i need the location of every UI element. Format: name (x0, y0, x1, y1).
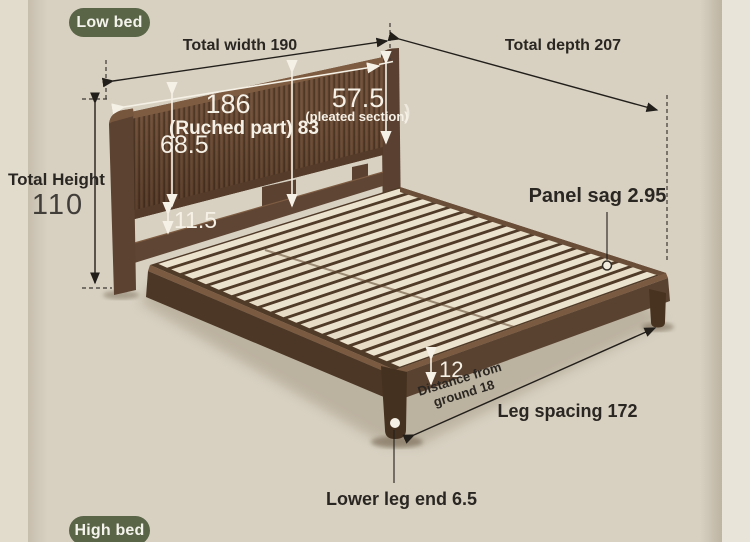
total-depth-label: Total depth 207 (483, 37, 643, 55)
rail-gap-value: 11.5 (174, 208, 217, 233)
front-left-leg (381, 366, 407, 439)
high-bed-badge: High bed (69, 516, 150, 542)
pleated-extra-paren: ) (404, 103, 410, 124)
total-width-label: Total width 190 (160, 37, 320, 55)
bed-illustration (0, 0, 750, 542)
panel-sag-label: Panel sag 2.95 (520, 185, 675, 207)
panel-height-value: 68.5 (160, 132, 209, 160)
lower-leg-end-label: Lower leg end 6.5 (324, 490, 479, 510)
leg-spacing-label: Leg spacing 172 (490, 402, 645, 422)
left-wall-corner (0, 0, 28, 542)
total-height-value: 110 (12, 190, 104, 222)
lower-leg-marker (390, 418, 400, 428)
panel-sag-marker (603, 261, 612, 270)
total-height-label: Total Height (8, 171, 100, 190)
far-right-leg (649, 289, 666, 328)
headboard-width-value: 186 (176, 90, 280, 120)
right-wall-corner (722, 0, 750, 542)
low-bed-badge: Low bed (69, 8, 150, 37)
bed-dimensions-figure: Low bed High bed Total width 190 Total d… (0, 0, 750, 542)
pleated-section-label: (pleated section) (296, 110, 418, 124)
